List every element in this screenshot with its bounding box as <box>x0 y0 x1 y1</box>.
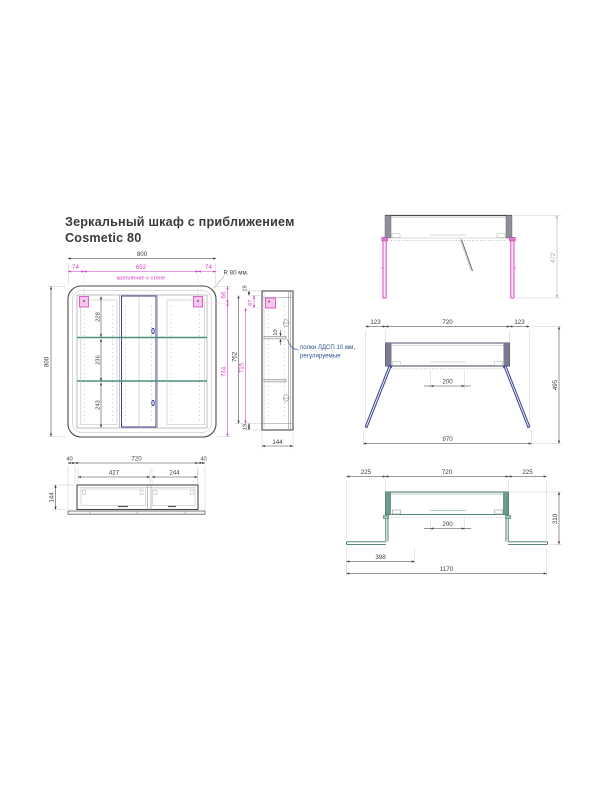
dim-plan-door-right: 244 <box>169 470 180 477</box>
plan-back-strip <box>68 511 205 514</box>
top-view-doors-open-angled: 123 720 123 200 970 <box>364 319 563 446</box>
dim-angled-side-left: 123 <box>370 319 381 326</box>
dim-open90-depth: 472 <box>550 252 557 263</box>
wall-bracket <box>266 298 276 308</box>
side-wall-section <box>385 216 391 239</box>
dim-angled-total-width: 970 <box>442 436 453 443</box>
dim-front-section-top: 228 <box>96 312 102 322</box>
side-shelf <box>264 379 286 382</box>
dim-plan-depth: 144 <box>49 492 56 503</box>
open-door-right <box>505 515 547 544</box>
dim-side-bracket-offset: 47 <box>248 300 254 306</box>
dim-angled-side-right: 123 <box>514 319 525 326</box>
dim-flat-door-width: 398 <box>375 554 386 561</box>
bottom-plan-view: 40 720 40 427 244 144 <box>49 456 207 515</box>
technical-drawing: 800 74 652 74 крепление к стене R 80 мм.… <box>0 0 600 800</box>
dim-flat-body: 720 <box>442 469 453 476</box>
dim-front-section-middle: 236 <box>96 355 102 365</box>
side-wall-section <box>504 343 510 366</box>
flat-body-outline <box>386 492 509 515</box>
dim-front-height-total: 800 <box>44 356 51 367</box>
dim-side-bottom-panel: 19 <box>243 424 249 430</box>
dim-plan-body: 720 <box>131 456 142 463</box>
dim-side-inner-height: 762 <box>232 351 239 362</box>
wall-bracket <box>80 297 89 308</box>
front-view: 800 74 652 74 крепление к стене R 80 мм.… <box>44 251 249 437</box>
dim-flat-side-left: 225 <box>361 469 372 476</box>
dim-flat-depth: 310 <box>552 513 559 524</box>
dim-side-depth: 144 <box>272 439 283 446</box>
side-wall-section <box>503 492 509 515</box>
dim-side-shelf-thickness: 10 <box>273 329 279 335</box>
dim-front-mount-span: 652 <box>136 264 147 271</box>
open-door-left <box>365 366 391 428</box>
wall-bracket <box>194 297 203 308</box>
top-view-doors-open-flat: 225 720 225 <box>347 469 563 576</box>
dim-angled-depth: 495 <box>552 379 559 390</box>
side-wall-section <box>386 343 392 366</box>
side-view: 19 47 762 715 10 19 144 полки ЛДСП 10 мм… <box>232 285 356 449</box>
dim-plan-edge-right: 40 <box>200 457 206 463</box>
mount-label: крепление к стене <box>117 276 165 282</box>
dim-plan-edge-left: 40 <box>66 457 72 463</box>
dim-front-top-to-bracket: 66 <box>221 291 228 298</box>
dim-angled-handle-zone: 200 <box>442 379 453 386</box>
shelf-note-line1: полки ЛДСП 10 мм, <box>300 344 355 351</box>
drawing-sheet: Зеркальный шкаф с приближением Cosmetic … <box>0 0 600 800</box>
dim-front-mount-left: 74 <box>72 264 79 271</box>
dim-front-width-total: 800 <box>137 251 148 258</box>
dim-front-mount-right: 74 <box>205 264 212 271</box>
plan-body-outline <box>77 485 198 510</box>
dim-front-bracket-to-bottom: 734 <box>221 366 228 377</box>
dim-flat-handle-zone: 200 <box>442 521 453 528</box>
dim-flat-side-right: 225 <box>522 469 533 476</box>
dim-angled-body: 720 <box>442 319 453 326</box>
shelf-note-line2: регулируемые <box>300 353 341 360</box>
side-wall-section <box>506 216 512 239</box>
dim-side-mount-height: 715 <box>239 362 246 373</box>
dim-plan-door-left: 427 <box>109 470 120 477</box>
dim-flat-total-width: 1170 <box>440 566 454 573</box>
dim-side-top-panel: 19 <box>243 285 249 291</box>
dim-front-section-bottom: 243 <box>96 400 102 410</box>
open-door-right <box>504 366 530 428</box>
open-door-left <box>381 238 388 299</box>
open-door-left <box>347 515 389 544</box>
side-wall-section <box>386 492 392 515</box>
corner-radius-label: R 80 мм. <box>223 270 248 277</box>
magnifier-mirror-door <box>462 240 473 272</box>
top-view-doors-open-90: 472 <box>381 216 561 299</box>
front-cabinet-outline <box>68 286 216 437</box>
side-shelf <box>264 336 286 339</box>
open-door-right <box>509 238 516 299</box>
